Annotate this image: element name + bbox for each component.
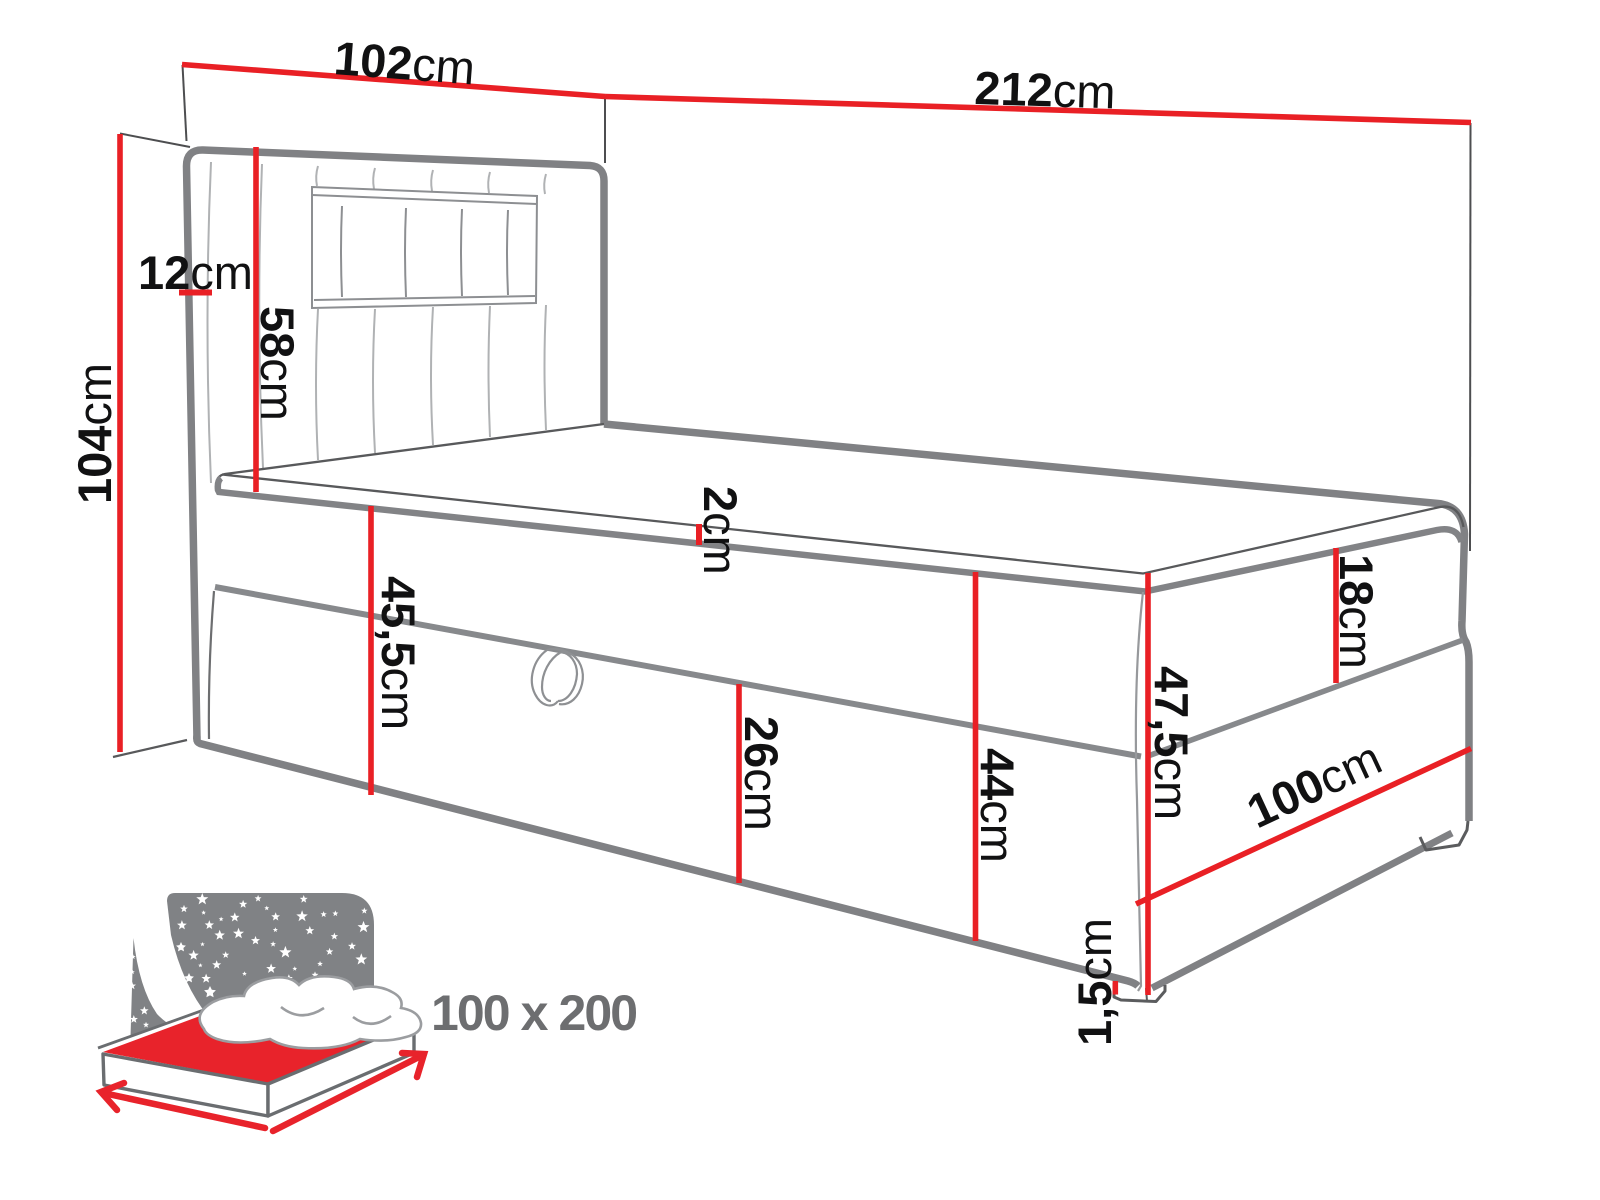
- svg-text:12cm: 12cm: [138, 246, 253, 299]
- svg-text:18cm: 18cm: [1330, 554, 1383, 669]
- svg-text:104cm: 104cm: [68, 363, 121, 504]
- svg-text:2cm: 2cm: [694, 486, 747, 575]
- svg-text:45,5cm: 45,5cm: [372, 576, 425, 730]
- svg-text:212cm: 212cm: [974, 61, 1117, 118]
- svg-text:44cm: 44cm: [971, 748, 1024, 863]
- svg-text:1,5cm: 1,5cm: [1068, 918, 1121, 1046]
- svg-text:58cm: 58cm: [251, 306, 304, 421]
- svg-text:102cm: 102cm: [332, 31, 477, 94]
- svg-text:26cm: 26cm: [735, 716, 788, 831]
- svg-text:100 x 200: 100 x 200: [431, 985, 638, 1041]
- svg-text:47,5cm: 47,5cm: [1145, 666, 1198, 820]
